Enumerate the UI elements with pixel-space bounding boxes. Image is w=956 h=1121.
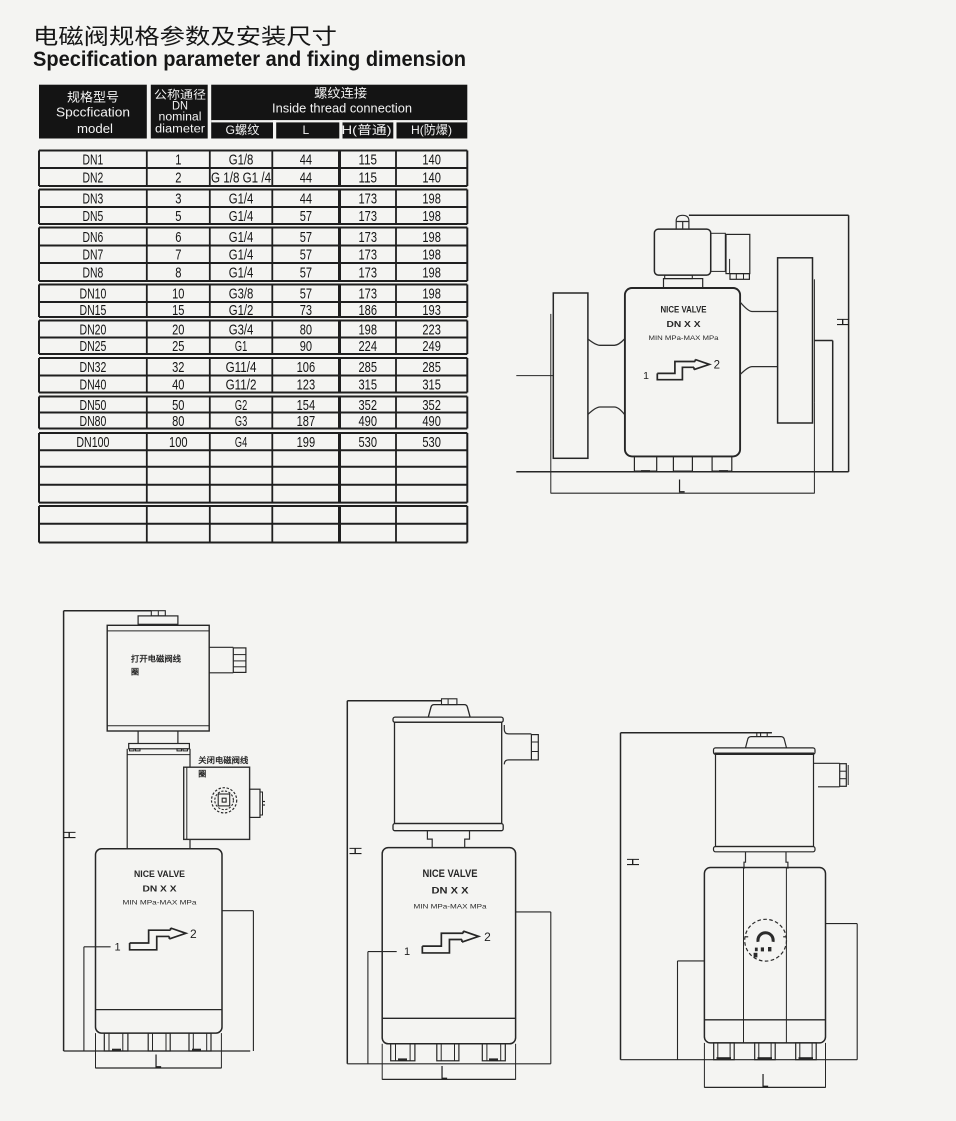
svg-text:100: 100 [169, 434, 188, 451]
svg-text:MIN MPa-MAX MPa: MIN MPa-MAX MPa [649, 335, 720, 342]
svg-text:57: 57 [300, 264, 312, 281]
svg-text:G11/4: G11/4 [226, 359, 257, 376]
svg-text:80: 80 [300, 321, 312, 338]
svg-text:G1/4: G1/4 [229, 208, 254, 225]
svg-text:57: 57 [300, 286, 312, 303]
svg-text:6: 6 [175, 229, 181, 246]
svg-text:15: 15 [172, 302, 184, 319]
svg-text:NICE VALVE: NICE VALVE [423, 868, 478, 880]
svg-text:DN3: DN3 [83, 191, 104, 208]
svg-text:NICE VALVE: NICE VALVE [134, 869, 185, 880]
svg-text:DN15: DN15 [80, 302, 107, 319]
svg-text:44: 44 [300, 169, 312, 186]
svg-text:7: 7 [175, 247, 181, 264]
svg-text:2: 2 [175, 169, 181, 186]
svg-text:57: 57 [300, 229, 312, 246]
svg-text:G螺纹: G螺纹 [226, 123, 260, 137]
svg-text:73: 73 [300, 302, 312, 319]
svg-text:DN5: DN5 [83, 208, 104, 225]
svg-text:G2: G2 [235, 397, 247, 414]
svg-text:140: 140 [422, 169, 441, 186]
svg-text:L: L [440, 1064, 447, 1084]
svg-text:173: 173 [359, 286, 378, 303]
svg-text:10: 10 [172, 286, 184, 303]
svg-text:1: 1 [404, 946, 410, 958]
svg-text:MIN MPa-MAX MPa: MIN MPa-MAX MPa [123, 899, 198, 906]
svg-text:G1/4: G1/4 [229, 247, 254, 264]
svg-text:DN1: DN1 [83, 152, 104, 169]
svg-text:106: 106 [297, 359, 316, 376]
svg-text:530: 530 [359, 434, 378, 451]
svg-text:nominal: nominal [159, 112, 202, 124]
svg-text:DN25: DN25 [80, 338, 107, 355]
svg-text:490: 490 [422, 413, 441, 430]
svg-text:L: L [303, 123, 310, 137]
svg-text:螺纹连接: 螺纹连接 [314, 86, 368, 101]
svg-text:G1/4: G1/4 [229, 264, 254, 281]
svg-text:H: H [60, 831, 80, 839]
svg-text:173: 173 [359, 264, 378, 281]
svg-text:115: 115 [359, 169, 378, 186]
svg-text:173: 173 [359, 229, 378, 246]
svg-text:DN2: DN2 [83, 169, 104, 186]
svg-text:Inside thread connection: Inside thread connection [272, 102, 412, 116]
svg-text:DN8: DN8 [83, 264, 104, 281]
svg-text:MIN MPa-MAX MPa: MIN MPa-MAX MPa [414, 904, 488, 911]
svg-text:G11/2: G11/2 [226, 376, 257, 393]
svg-text:315: 315 [359, 376, 378, 393]
svg-text:5: 5 [175, 208, 181, 225]
svg-text:DN40: DN40 [80, 376, 107, 393]
svg-text:H: H [346, 847, 366, 855]
svg-text:57: 57 [300, 208, 312, 225]
svg-text:H: H [623, 858, 643, 866]
svg-text:25: 25 [172, 338, 184, 355]
svg-text:44: 44 [300, 152, 312, 169]
svg-text:123: 123 [297, 376, 316, 393]
svg-text:DN50: DN50 [80, 397, 107, 414]
svg-text:DN X X: DN X X [143, 883, 177, 893]
svg-text:Spccfication: Spccfication [56, 106, 130, 120]
svg-text:2: 2 [190, 927, 197, 941]
svg-text:2: 2 [714, 359, 720, 371]
svg-text:490: 490 [359, 413, 378, 430]
svg-text:DN X X: DN X X [432, 886, 470, 897]
svg-text:32: 32 [172, 359, 184, 376]
svg-text:285: 285 [359, 359, 378, 376]
svg-text:G1/2: G1/2 [229, 302, 254, 319]
svg-text:DN32: DN32 [80, 359, 107, 376]
svg-text:DN7: DN7 [83, 247, 104, 264]
svg-text:1: 1 [114, 942, 120, 954]
svg-text:G1/8: G1/8 [229, 152, 254, 169]
svg-text:285: 285 [422, 359, 441, 376]
svg-text:173: 173 [359, 247, 378, 264]
svg-text:80: 80 [172, 413, 184, 430]
svg-text:H(防爆): H(防爆) [411, 122, 452, 137]
svg-text:90: 90 [300, 338, 312, 355]
svg-text:圈: 圈 [198, 770, 206, 779]
svg-text:H(普通): H(普通) [342, 123, 392, 137]
svg-text:圈: 圈 [131, 668, 139, 677]
svg-text:DN20: DN20 [80, 321, 107, 338]
svg-text:115: 115 [359, 152, 378, 169]
svg-text:model: model [77, 122, 113, 136]
svg-text:315: 315 [422, 376, 441, 393]
svg-text:3: 3 [175, 191, 181, 208]
svg-text:198: 198 [422, 247, 441, 264]
svg-text:223: 223 [422, 321, 441, 338]
svg-text:198: 198 [422, 286, 441, 303]
svg-text:DN X X: DN X X [667, 319, 701, 329]
svg-text:193: 193 [422, 302, 441, 319]
svg-text:40: 40 [172, 376, 184, 393]
svg-text:G1/4: G1/4 [229, 191, 254, 208]
svg-text:1: 1 [643, 370, 649, 382]
svg-text:173: 173 [359, 191, 378, 208]
svg-text:G4: G4 [235, 434, 247, 451]
svg-text:530: 530 [422, 434, 441, 451]
svg-text:NICE VALVE: NICE VALVE [661, 305, 707, 316]
svg-text:140: 140 [422, 152, 441, 169]
svg-text:2: 2 [484, 930, 491, 944]
svg-text:G1: G1 [235, 338, 247, 355]
svg-text:L: L [678, 477, 685, 497]
svg-text:198: 198 [422, 208, 441, 225]
svg-text:diameter: diameter [155, 124, 205, 136]
svg-text:打开电磁阀线: 打开电磁阀线 [131, 654, 181, 664]
svg-text:199: 199 [297, 434, 316, 451]
svg-text:DN80: DN80 [80, 413, 107, 430]
svg-text:DN100: DN100 [76, 434, 109, 451]
svg-text:249: 249 [422, 338, 441, 355]
svg-text:G3/4: G3/4 [229, 321, 254, 338]
svg-text:L: L [761, 1072, 768, 1092]
svg-text:G1/4: G1/4 [229, 229, 254, 246]
svg-text:G3/8: G3/8 [229, 286, 254, 303]
svg-text:电磁阀规格参数及安装尺寸: 电磁阀规格参数及安装尺寸 [33, 25, 337, 49]
svg-text:44: 44 [300, 191, 312, 208]
svg-text:198: 198 [422, 264, 441, 281]
svg-text:1: 1 [175, 152, 181, 169]
svg-text:57: 57 [300, 247, 312, 264]
svg-text:352: 352 [422, 397, 441, 414]
svg-text:Specification parameter and fi: Specification parameter and fixing dimen… [33, 48, 466, 71]
svg-text:154: 154 [297, 397, 316, 414]
svg-text:198: 198 [422, 229, 441, 246]
svg-text:186: 186 [359, 302, 378, 319]
svg-text:50: 50 [172, 397, 184, 414]
svg-text:关闭电磁阀线: 关闭电磁阀线 [198, 755, 248, 765]
svg-text:20: 20 [172, 321, 184, 338]
svg-text:L: L [154, 1052, 161, 1072]
svg-text:DN10: DN10 [80, 286, 107, 303]
svg-text:规格型号: 规格型号 [67, 90, 119, 105]
svg-text:DN6: DN6 [83, 229, 104, 246]
svg-text:G3: G3 [235, 413, 247, 430]
svg-text:公称通径: 公称通径 [154, 88, 206, 102]
svg-text:G 1/8 G1 /4: G 1/8 G1 /4 [211, 169, 271, 186]
svg-text:173: 173 [359, 208, 378, 225]
svg-text:8: 8 [175, 264, 181, 281]
svg-text:198: 198 [422, 191, 441, 208]
svg-text:352: 352 [359, 397, 378, 414]
svg-text:198: 198 [359, 321, 378, 338]
svg-text:H: H [833, 318, 853, 326]
svg-text:224: 224 [359, 338, 378, 355]
svg-text:187: 187 [297, 413, 316, 430]
